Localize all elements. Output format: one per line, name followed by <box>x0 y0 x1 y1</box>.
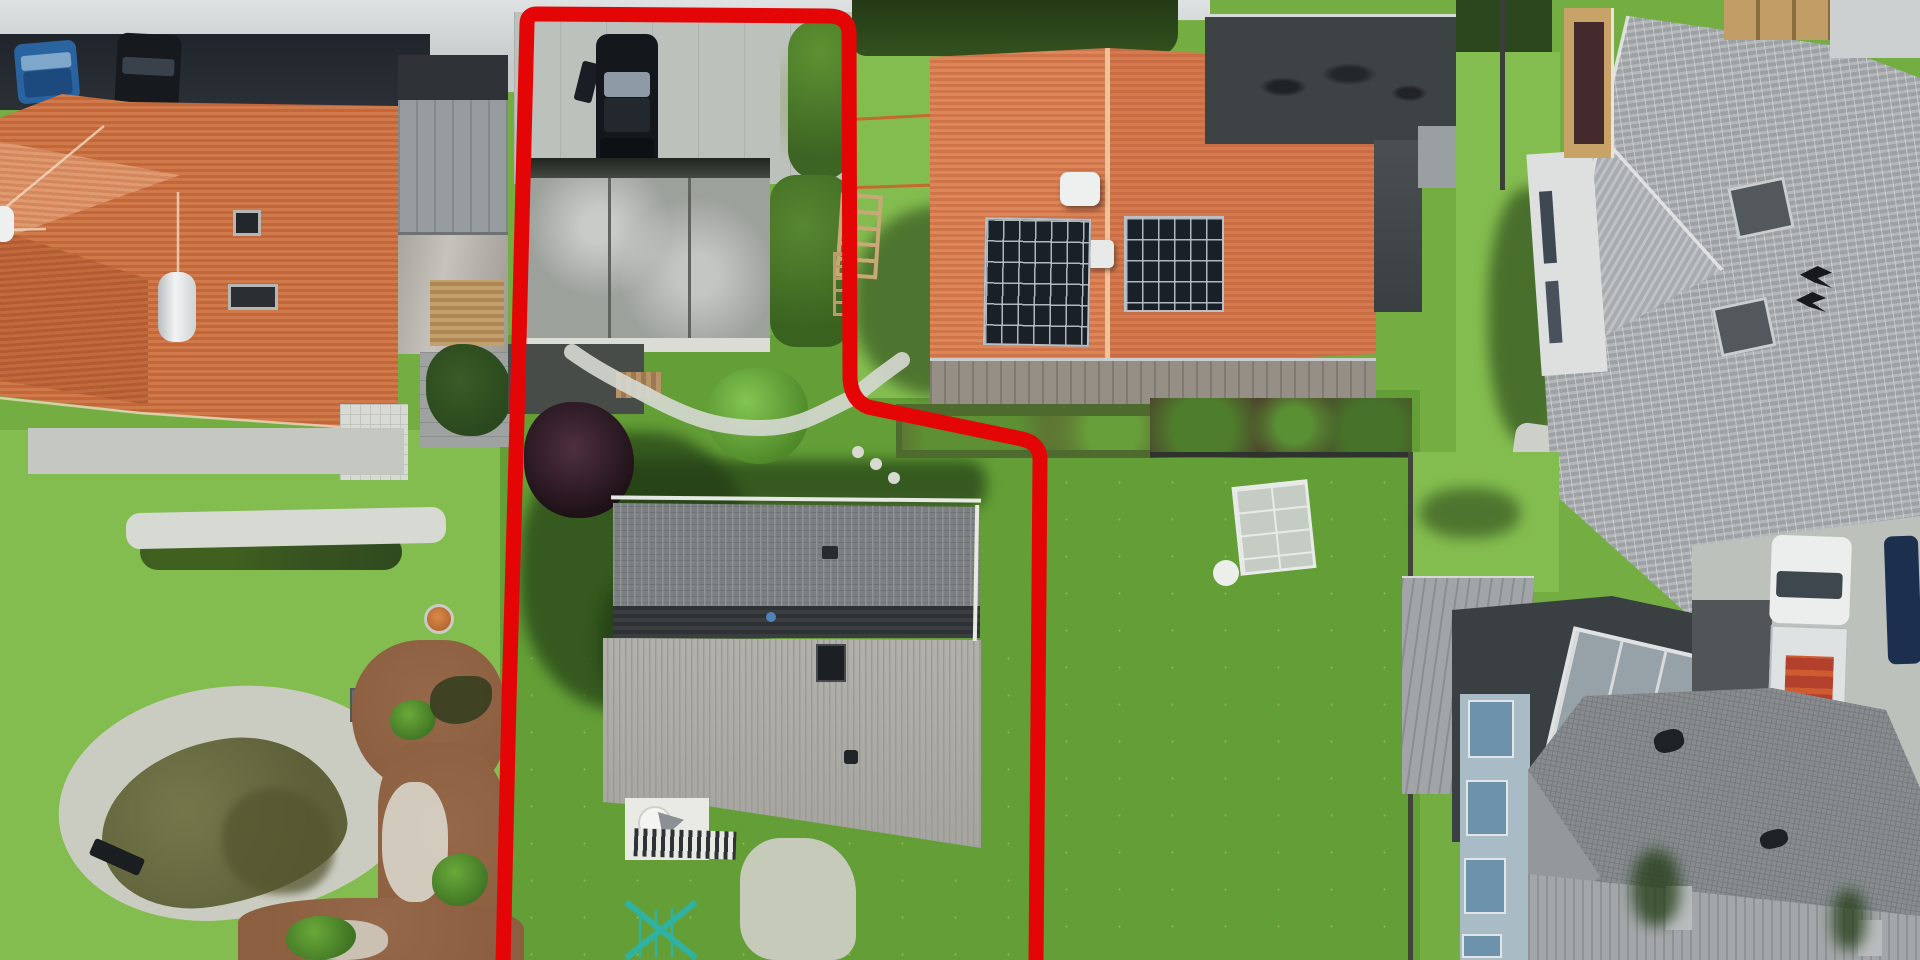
balcony-interior <box>1574 22 1604 144</box>
house-chimney <box>816 644 846 682</box>
garage-roof <box>526 178 770 340</box>
stone-path <box>126 507 447 550</box>
fence-line-1 <box>1500 0 1505 190</box>
chimney-vent-cylinder <box>158 272 196 342</box>
boundary-bushes-top <box>788 20 852 180</box>
trellis <box>833 252 853 316</box>
mulch-bed-3 <box>238 898 524 960</box>
blue-car-roof <box>23 68 73 98</box>
orange-rope-2 <box>848 184 930 190</box>
wood-balcony <box>1564 8 1614 158</box>
annex-metal-roof <box>398 100 508 235</box>
roof-vent-box-1 <box>1060 172 1100 206</box>
cold-frame-greenhouse <box>1232 479 1317 575</box>
black-car-windshield <box>122 57 175 77</box>
wildflower-speckle <box>1040 390 1420 960</box>
aerial-photo <box>0 0 1920 960</box>
slat-railing <box>634 828 737 860</box>
mowed-lawn-patch <box>1413 452 1559 592</box>
roof-planters <box>1724 0 1838 40</box>
garden-beds-right <box>1150 398 1412 458</box>
white-dish <box>1213 560 1239 586</box>
wall-window <box>1462 934 1502 958</box>
roof-facet-sunlit <box>0 120 180 240</box>
parked-dark-car <box>596 34 658 166</box>
garage-seam <box>608 178 611 340</box>
roof-antenna <box>822 546 838 559</box>
skylight-1 <box>233 210 261 236</box>
truck-windshield <box>1776 571 1843 599</box>
edge-vent <box>0 206 14 242</box>
house-side-shadow <box>1374 140 1422 312</box>
garage-seam <box>688 178 691 340</box>
house-shadow <box>606 460 986 510</box>
roof-facet-shaded <box>0 230 148 405</box>
facade-window <box>1539 191 1557 264</box>
orange-rope-1 <box>848 114 930 121</box>
purple-leaf-tree <box>524 402 634 518</box>
wood-structure <box>430 280 504 346</box>
concrete-top-right <box>1830 0 1920 58</box>
car-windshield <box>604 72 650 97</box>
window-wall <box>1460 694 1530 960</box>
roof-ridge-cap <box>1105 48 1110 366</box>
green-tree <box>706 368 808 464</box>
hedge-top-center <box>852 0 1178 56</box>
solar-array-right <box>1124 216 1224 312</box>
car-hood <box>600 138 654 162</box>
house-roof-upper-slope <box>613 500 980 610</box>
wall-window <box>1466 780 1508 836</box>
dark-flat-roof-wing <box>1205 14 1467 144</box>
eave-chimney-1 <box>1666 886 1692 930</box>
woodpile-small <box>616 372 662 398</box>
wall-window <box>1468 700 1514 758</box>
fence-horizontal <box>1150 452 1412 457</box>
wall-window <box>1464 858 1506 914</box>
roof-vent-dot <box>844 750 858 764</box>
neighbor-garden <box>1040 390 1420 960</box>
blue-car <box>14 39 81 104</box>
gravel-patch <box>740 838 856 960</box>
dark-blue-car <box>1884 535 1920 664</box>
house-gutter-top <box>611 495 981 502</box>
house-terrace <box>28 428 404 474</box>
car-roof <box>604 98 650 132</box>
house-roof-ridge <box>613 606 980 638</box>
skylight-2 <box>228 284 278 310</box>
facade-window <box>1545 281 1562 344</box>
solar-array-left <box>983 217 1091 347</box>
orange-hip-roof-house <box>0 85 400 435</box>
fire-bowl <box>424 604 454 634</box>
eave-chimney-2 <box>1858 920 1882 956</box>
